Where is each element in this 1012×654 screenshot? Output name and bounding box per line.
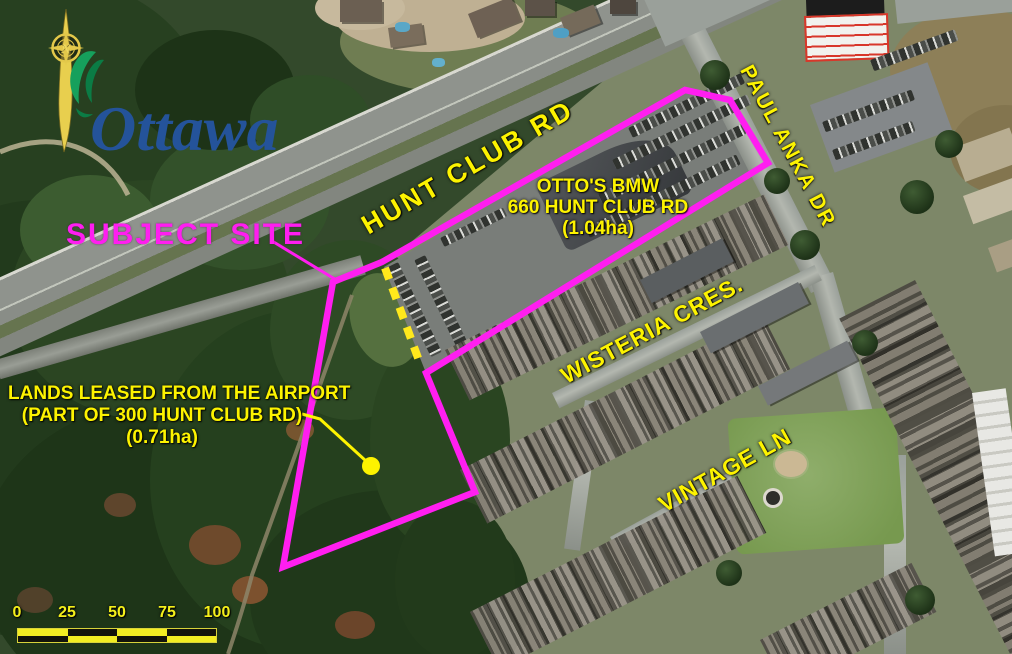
scale-bar: 0 25 50 75 100 bbox=[14, 604, 224, 646]
scale-label-75: 75 bbox=[158, 604, 176, 622]
annotation-layer: N Ottawa bbox=[0, 0, 1012, 654]
scale-segment bbox=[167, 636, 217, 643]
leased-lands-line2: (PART OF 300 HUNT CLUB RD) bbox=[8, 405, 316, 427]
scale-label-0: 0 bbox=[13, 604, 22, 622]
leased-lands-line1: LANDS LEASED FROM THE AIRPORT bbox=[8, 383, 316, 405]
compass-north-label: N bbox=[60, 41, 71, 56]
ottos-bmw-label: OTTO'S BMW 660 HUNT CLUB RD (1.04ha) bbox=[498, 176, 698, 239]
scale-label-100: 100 bbox=[204, 604, 231, 622]
leased-lands-label: LANDS LEASED FROM THE AIRPORT (PART OF 3… bbox=[8, 383, 316, 449]
leased-lands-area: (0.71ha) bbox=[8, 427, 316, 449]
compass-needle bbox=[59, 9, 72, 152]
leased-lands-marker-dot bbox=[362, 457, 380, 475]
scale-segment bbox=[117, 636, 167, 643]
parcel-divider-dashed-line bbox=[385, 268, 421, 366]
scale-label-25: 25 bbox=[58, 604, 76, 622]
ottawa-logo: N Ottawa bbox=[48, 9, 278, 164]
ottos-bmw-area: (1.04ha) bbox=[498, 218, 698, 239]
aerial-map: N Ottawa SUBJECT SITE HUNT CLUB RD OTTO'… bbox=[0, 0, 1012, 654]
ottos-bmw-name: OTTO'S BMW bbox=[498, 176, 698, 197]
ottawa-wordmark: Ottawa bbox=[90, 93, 278, 164]
ottos-bmw-address: 660 HUNT CLUB RD bbox=[498, 197, 698, 218]
scale-segment bbox=[68, 636, 118, 643]
scale-bar-segments bbox=[17, 628, 217, 643]
subject-site-label: SUBJECT SITE bbox=[66, 218, 305, 252]
scale-segment bbox=[18, 636, 68, 643]
scale-label-50: 50 bbox=[108, 604, 126, 622]
